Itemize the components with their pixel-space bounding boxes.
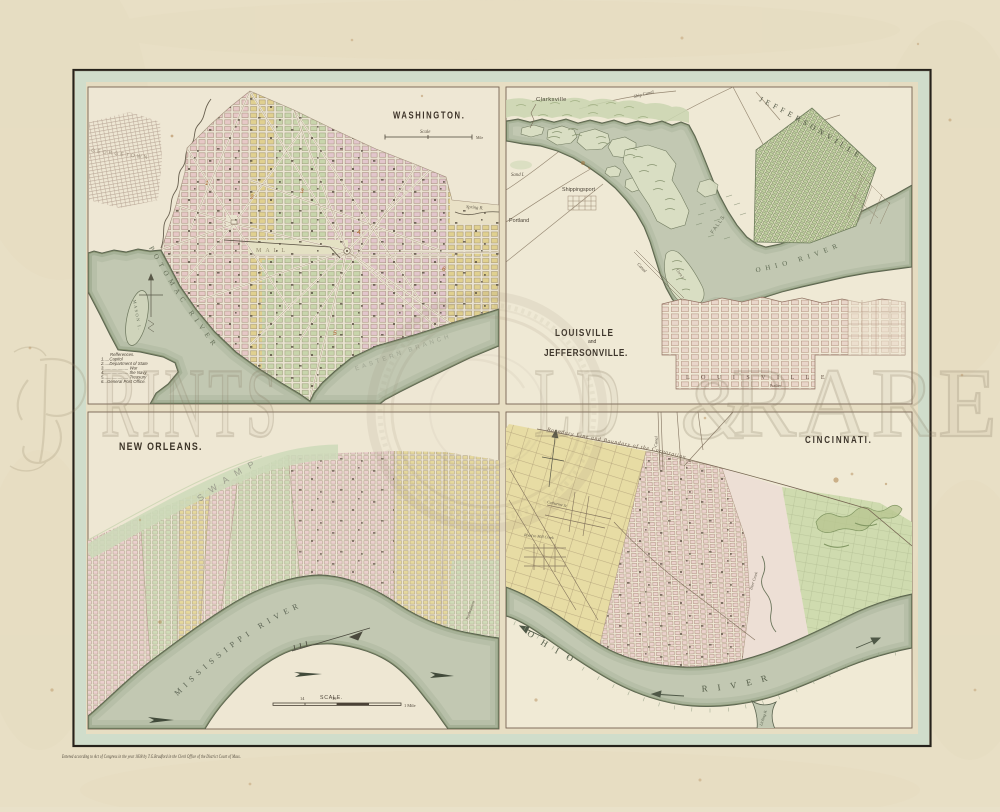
- svg-text:Entered according to Act of Co: Entered according to Act of Congress in …: [61, 753, 241, 759]
- svg-text:RINTS: RINTS: [101, 350, 281, 459]
- svg-text:LD: LD: [534, 348, 624, 457]
- svg-text:RARE: RARE: [732, 349, 1000, 459]
